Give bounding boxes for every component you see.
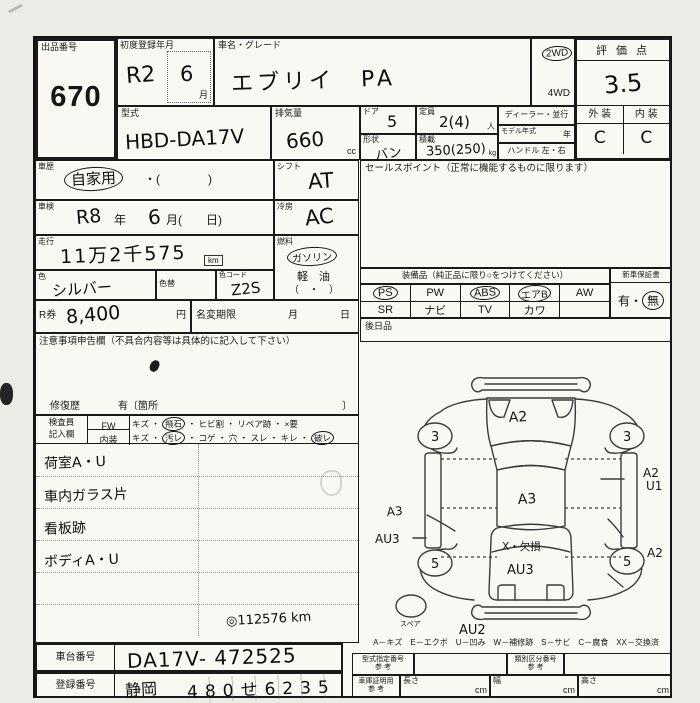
diagram-right-rear-mark: A2 — [647, 546, 663, 560]
dotted-line — [36, 476, 358, 477]
car-name-cell: 車名・グレード エブリイ PA — [214, 38, 531, 106]
equipment-row-2: SR ナビ TV カワ — [361, 302, 609, 317]
dotted-line — [36, 540, 358, 541]
equipment-cell: PS — [361, 285, 411, 301]
displacement-unit: cc — [347, 147, 356, 157]
equipment-airbag: エアB — [521, 289, 548, 301]
exterior-label: 外 装 — [577, 106, 624, 123]
equipment-ps: PS — [378, 287, 393, 300]
interior-circled-1-label: 汚レ — [165, 433, 183, 444]
history-value-circled: 自家用 — [63, 165, 123, 192]
handle-label: ハンドル 左・右 — [507, 147, 565, 156]
exterior-interior-values: C C — [577, 123, 669, 154]
damage-diagram: A2 A3 X・欠損 AU3 AU2 A3 AU3 A2 U1 A2 3 3 5… — [361, 342, 671, 636]
drive-2wd-label: 2WD — [545, 47, 568, 59]
note-2: 車内ガラス片 — [44, 484, 128, 507]
load-unit: kg — [489, 150, 496, 158]
diagram-roof-mark: A3 — [517, 491, 536, 508]
equipment-leather: カワ — [524, 302, 546, 318]
warranty-box: 新車保証書 有・無 — [610, 268, 672, 318]
first-registration-cell: 初度登録年月 R2 6 月 — [117, 38, 214, 106]
score-box: 評 価 点 3.5 外 装 内 装 C C — [575, 38, 671, 160]
width-cell: 幅 cm — [490, 675, 578, 698]
height-cell: 高さ cm — [578, 675, 672, 698]
first-registration-month: 6 — [180, 62, 193, 86]
model-code-cell: 型式 HBD-DA17V — [117, 106, 271, 160]
history-cell: 車歴 自家用 ・( ) — [35, 160, 274, 200]
type-number-label: 型式指定番号 — [353, 654, 413, 664]
equipment-cell: TV — [461, 302, 511, 317]
type-number-value-cell — [414, 653, 507, 675]
equipment-grid: PS PW ABS エアB AW SR ナビ TV カワ — [360, 284, 610, 318]
door-value: 5 — [387, 112, 397, 131]
sales-point-box: セールスポイント（正常に機能するものに限ります） — [360, 160, 672, 268]
drive-4wd: 4WD — [548, 88, 570, 99]
fw-items: キズ ・ 飛石 ・ ヒビ割 ・ リペア跡 ・ ×要 — [132, 417, 358, 430]
interior-label: 内 装 — [624, 106, 670, 123]
r-ticket-label: R券 — [39, 310, 56, 321]
interior-items-mid: ・ コゲ ・ 穴 ・ スレ ・ キレ ・ — [188, 433, 309, 443]
equipment-cell: SR — [361, 302, 411, 317]
class-number-ref: 参 考 — [508, 664, 563, 672]
interior-row-cell: 内装 — [88, 430, 130, 445]
length-label: 長さ — [403, 677, 419, 686]
class-number-label: 類別区分番号 — [508, 654, 563, 664]
interior-circled-2-label: 破レ — [314, 433, 332, 444]
door-cell: ドア 5 — [360, 106, 416, 134]
registration-area: 静岡 — [124, 675, 157, 701]
fw-items-pre: キズ ・ — [132, 419, 160, 429]
equipment-aw: AW — [576, 287, 593, 299]
equipment-header: 装備品（純正品に限り○をつけてください） — [360, 268, 610, 284]
dotted-line — [36, 572, 358, 573]
height-unit: cm — [657, 686, 669, 696]
equipment-ps-circled: PS — [373, 285, 398, 300]
first-registration-value: R2 — [125, 62, 156, 89]
exterior-grade: C — [577, 124, 624, 154]
registration-label-cell: 登録番号 — [37, 674, 115, 696]
later-items-box: 後日品 — [360, 318, 672, 342]
cooling-cell: 冷房 AC — [274, 200, 359, 235]
mileage-label: 走行 — [38, 238, 54, 247]
equipment-cell: カワ — [510, 302, 560, 317]
fuel-cell: 燃料 ガソリン 軽 油 （ ・ ） — [274, 235, 359, 300]
diagram-left-rocker-mark: AU3 — [375, 532, 400, 546]
drive-2wd: 2WD — [541, 45, 572, 62]
car-name-label: 車名・グレード — [215, 39, 530, 53]
shift-label: シフト — [277, 163, 301, 172]
color-label: 色 — [38, 273, 46, 282]
shift-value: AT — [307, 168, 334, 194]
chassis-value: DA17V- 472525 — [127, 643, 297, 673]
month-unit: 月 — [199, 91, 208, 101]
capacity-value: 2(4) — [439, 113, 470, 131]
fuel-label: 燃料 — [277, 238, 293, 247]
class-number-value-cell — [564, 653, 672, 675]
fw-cell: FW — [88, 416, 130, 430]
wheel-rear-left-grade: 5 — [431, 557, 439, 572]
month-label: 月 — [288, 310, 298, 321]
odometer-note: ◎112576 km — [226, 610, 312, 629]
cooling-value: AC — [304, 204, 335, 231]
chassis-label: 車台番号 — [56, 652, 96, 663]
fuel-diesel: 軽 油 — [297, 271, 330, 283]
note-1: 荷室A・U — [44, 451, 106, 473]
model-year-cell: モデル年式 年 — [498, 125, 575, 143]
equipment-airbag-circled: エアB — [518, 284, 552, 303]
equipment-cell: ナビ — [411, 302, 461, 317]
fw-circled: 飛石 — [162, 416, 186, 431]
class-number-cell: 類別区分番号 参 考 — [507, 653, 564, 675]
wheel-front-right-grade: 3 — [623, 430, 631, 445]
sales-point-label: セールスポイント（正常に機能するものに限ります） — [361, 161, 671, 177]
load-value: 350(250) — [426, 141, 486, 159]
width-label: 幅 — [493, 677, 501, 686]
drive-type-cell: 2WD 4WD — [531, 38, 575, 106]
equipment-cell: エアB — [510, 285, 560, 301]
load-cell: 積載 350(250) kg — [416, 134, 498, 160]
diagram-hood-mark: A2 — [508, 409, 527, 426]
diagram-right-side-mark-2: U1 — [646, 479, 662, 493]
registration-label: 登録番号 — [56, 680, 96, 691]
damage-legend: A－キズ E－エクボ U－凹み W－補修跡 S－サビ C－腐食 XX－交換済 — [362, 637, 670, 648]
registration-row: 登録番号 静岡 480せ6235 — [35, 672, 343, 698]
auction-number: 670 — [38, 81, 114, 114]
auction-number-label: 出品番号 — [38, 41, 114, 55]
garage-cert-ref: 参 考 — [353, 686, 399, 694]
capacity-label: 定員 — [419, 108, 435, 117]
inspection-cell: 車検 R8 年 6 月( 日) — [35, 200, 274, 235]
chassis-label-cell: 車台番号 — [37, 645, 115, 670]
chassis-row: 車台番号 DA17V- 472525 — [35, 643, 343, 672]
car-name-value: エブリイ PA — [230, 60, 396, 98]
warranty-separator: ・ — [630, 292, 642, 309]
mileage-unit: km — [208, 256, 219, 265]
fw-circled-label: 飛石 — [165, 419, 183, 430]
color-cell: 色 シルバー — [35, 270, 156, 300]
note-4: ボディA・U — [44, 549, 120, 572]
auction-number-box: 出品番号 670 — [35, 38, 117, 160]
diagram-rear-door-mark: AU3 — [507, 563, 534, 578]
warranty-label: 新車保証書 — [622, 271, 660, 279]
model-year-label: モデル年式 — [501, 128, 536, 136]
equipment-sr: SR — [378, 304, 393, 316]
scanned-auction-sheet: { "header": { "auction_no_label": "出品番号"… — [0, 0, 700, 700]
equipment-tv: TV — [478, 304, 492, 316]
shift-cell: シフト AT — [274, 160, 359, 200]
year-unit: 年 — [563, 131, 571, 140]
displacement-label: 排気量 — [272, 107, 359, 121]
shape-cell: 形状 バン — [360, 134, 416, 160]
garage-cert-cell: 車庫証明用 参 考 — [352, 675, 400, 698]
cooling-label: 冷房 — [277, 203, 293, 212]
color-change-label: 色替 — [159, 280, 175, 289]
type-number-cell: 型式指定番号 参 考 — [352, 653, 414, 675]
inspector-grid: 検査員 記入欄 FW キズ ・ 飛石 ・ ヒビ割 ・ リペア跡 ・ ×要 内装 … — [35, 415, 359, 444]
model-label: 型式 — [118, 107, 270, 121]
diagram-left-side-mark: A3 — [386, 504, 403, 519]
warranty-yes: 有 — [618, 292, 630, 309]
score-value: 3.5 — [575, 57, 670, 109]
color-code-label: 色コード — [219, 272, 247, 280]
equipment-row-1: PS PW ABS エアB AW — [361, 285, 609, 302]
fuel-paren: （ ・ ） — [289, 285, 339, 296]
length-unit: cm — [475, 686, 487, 696]
wheel-rear-right-grade: 5 — [623, 555, 631, 570]
equipment-cell: AW — [560, 285, 609, 301]
diagram-rear-bumper-mark: AU2 — [459, 623, 486, 636]
r-ticket-cell: R券 8,400 円 — [35, 300, 191, 333]
equipment-cell — [560, 302, 609, 317]
warranty-value: 有・無 — [611, 283, 671, 317]
color-code-value: Z2S — [230, 279, 261, 300]
displacement-value: 660 — [285, 127, 325, 154]
repair-label: 修復歴 — [50, 401, 80, 412]
equipment-navi: ナビ — [424, 302, 446, 318]
name-change-cell: 名変期限 月 日 — [191, 300, 359, 333]
model-code-value: HBD-DA17V — [124, 124, 244, 154]
interior-grade: C — [624, 124, 670, 154]
type-number-ref: 参 考 — [353, 664, 413, 672]
notice-label: 注意事項申告欄（不具合内容等は具体的に記入して下さい） — [36, 334, 358, 350]
inspection-era: R8 — [75, 205, 102, 229]
handle-cell: ハンドル 左・右 — [498, 143, 575, 160]
height-label: 高さ — [581, 677, 597, 686]
diagram-rear-window-mark: X・欠損 — [502, 540, 541, 553]
fuel-gasoline-circled: ガソリン — [287, 246, 338, 268]
inspector-label: 検査員 — [36, 416, 87, 427]
warranty-no: 無 — [647, 293, 660, 308]
fw-items-post: ・ ヒビ割 ・ リペア跡 ・ ×要 — [188, 419, 298, 429]
interior-items-pre: キズ ・ — [132, 433, 160, 443]
history-value: 自家用 — [71, 169, 117, 189]
later-items-label: 後日品 — [365, 322, 392, 332]
history-label: 車歴 — [38, 163, 54, 172]
width-unit: cm — [563, 686, 575, 696]
equipment-label: 装備品（純正品に限り○をつけてください） — [402, 271, 568, 280]
mileage-unit-box: km — [204, 255, 223, 266]
inspector-label-col: 検査員 記入欄 — [36, 416, 88, 443]
scan-artifact — [8, 4, 23, 14]
inspection-year-unit: 年 — [114, 214, 126, 227]
color-value: シルバー — [51, 276, 112, 301]
registration-number: 480せ6235 — [187, 672, 337, 702]
dealer-parallel-cell: ディーラー・並行 — [498, 106, 575, 125]
displacement-cell: 排気量 660 cc — [271, 106, 360, 160]
r-ticket-value: 8,400 — [65, 302, 121, 329]
inspection-month-paren: 月( 日) — [166, 214, 222, 227]
spare-tire-label: スペア — [400, 620, 421, 628]
entry-label: 記入欄 — [36, 427, 87, 439]
color-change-cell: 色替 — [156, 270, 216, 300]
door-label: ドア — [363, 108, 379, 117]
garage-cert-label: 車庫証明用 — [353, 676, 399, 686]
warranty-no-circled: 無 — [642, 290, 665, 310]
month-subbox: 6 月 — [167, 51, 211, 103]
inspection-label: 車検 — [38, 203, 54, 212]
dotted-line — [36, 508, 358, 509]
dotted-divider — [198, 444, 199, 636]
notice-box: 注意事項申告欄（不具合内容等は具体的に記入して下さい） 修復歴 有〔箇所 〕 — [35, 333, 359, 415]
equipment-cell: ABS — [461, 285, 511, 301]
inspection-month: 6 — [147, 204, 162, 229]
equipment-pw: PW — [426, 287, 444, 299]
note-3: 看板跡 — [44, 517, 87, 538]
dotted-line — [36, 604, 358, 605]
capacity-cell: 定員 2(4) 人 — [416, 106, 498, 134]
fuel-gasoline: ガソリン — [292, 252, 333, 265]
wheel-front-left-grade: 3 — [431, 430, 439, 445]
diagram-right-side-mark-1: A2 — [643, 466, 659, 480]
equipment-abs-circled: ABS — [470, 285, 501, 301]
equipment-abs: ABS — [474, 286, 497, 299]
scan-artifact — [0, 383, 13, 405]
interior-items: キズ ・ 汚レ ・ コゲ ・ 穴 ・ スレ ・ キレ ・ 破レ — [132, 431, 358, 444]
repair-close: 〕 — [342, 401, 352, 412]
warranty-label-cell: 新車保証書 — [611, 269, 671, 283]
repair-text: 有〔箇所 — [118, 401, 158, 412]
length-cell: 長さ cm — [400, 675, 490, 698]
yen-unit: 円 — [176, 310, 186, 321]
name-change-label: 名変期限 — [196, 310, 236, 321]
color-code-cell: 色コード Z2S — [216, 270, 274, 300]
capacity-unit: 人 — [487, 123, 495, 132]
equipment-cell: PW — [411, 285, 461, 301]
dealer-parallel-label: ディーラー・並行 — [505, 111, 568, 120]
mileage-value: 11万2千575 — [60, 238, 187, 269]
history-paren: ・( ) — [144, 173, 212, 186]
mileage-cell: 走行 11万2千575 km — [35, 235, 274, 270]
notes-area: 荷室A・U 車内ガラス片 看板跡 ボディA・U ◎112576 km — [35, 444, 359, 643]
day-label: 日 — [340, 310, 350, 321]
